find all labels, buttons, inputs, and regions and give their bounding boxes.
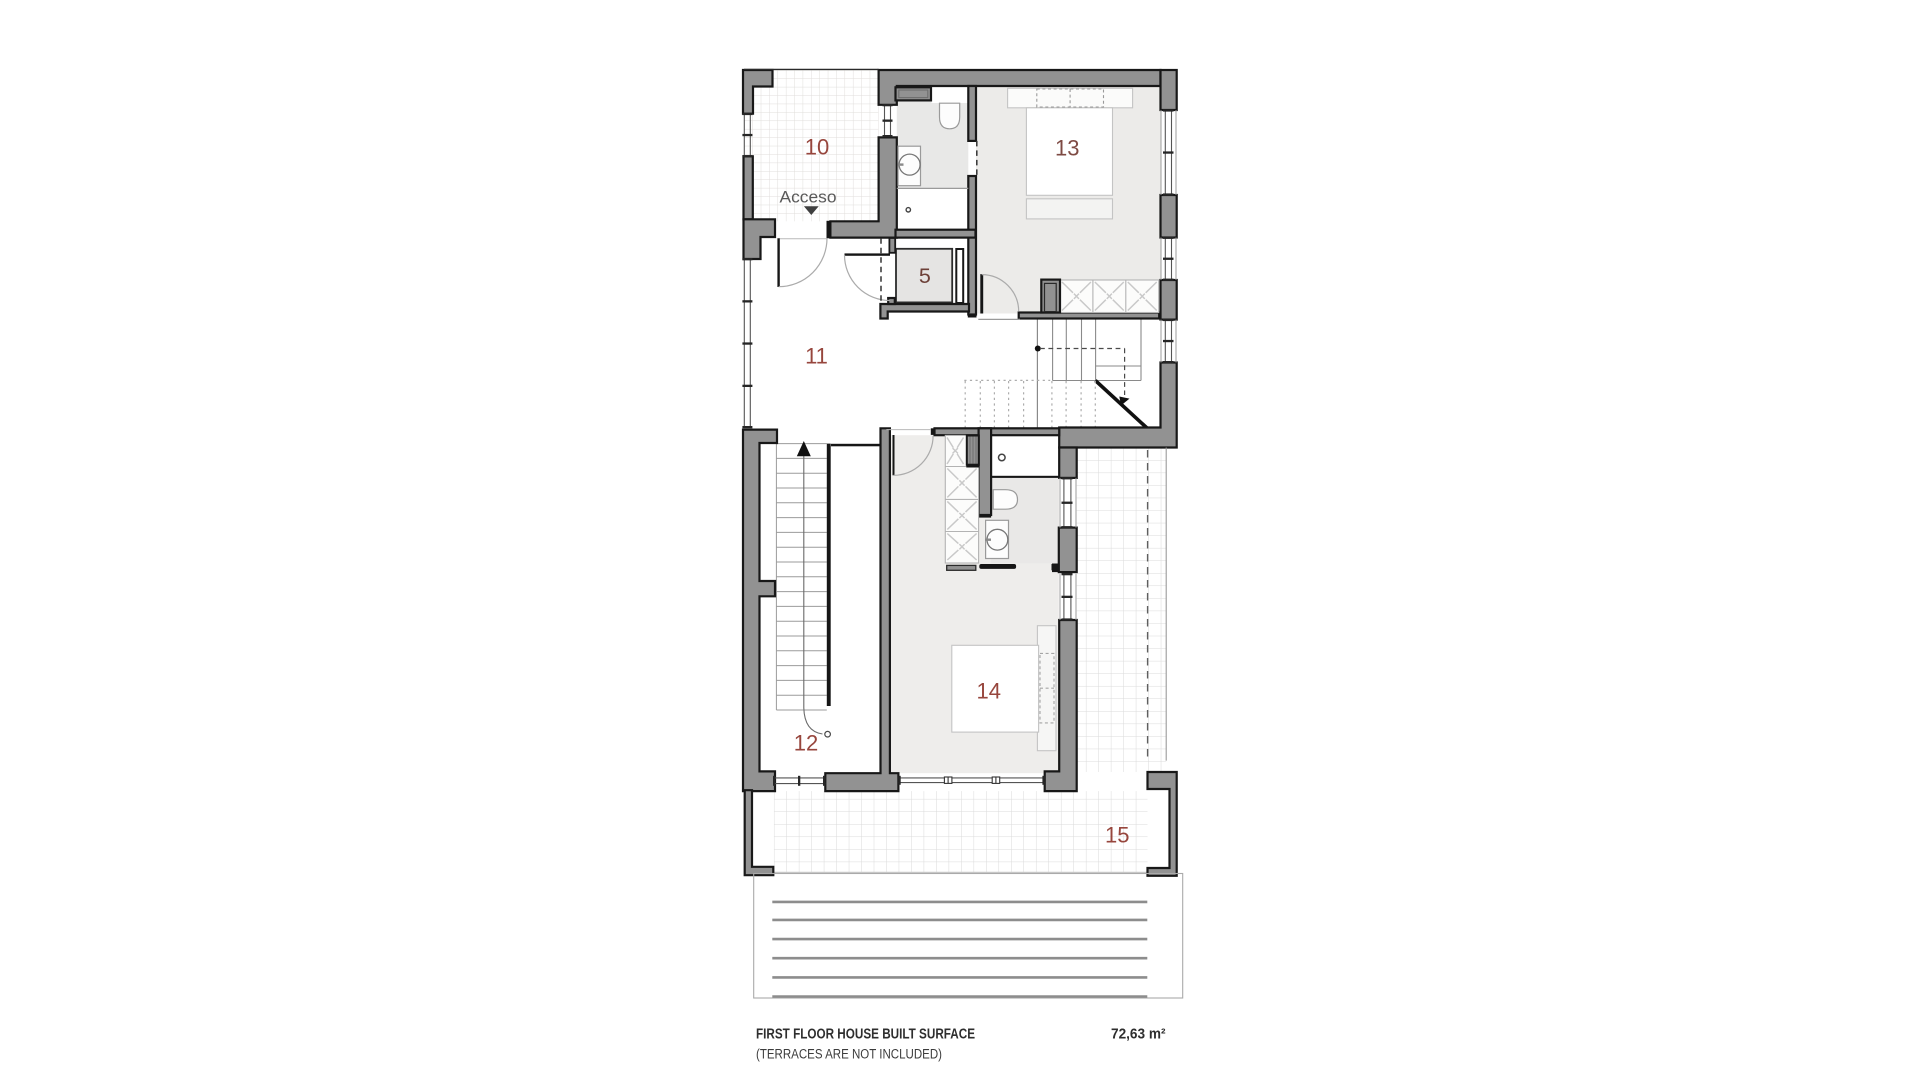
svg-text:FIRST FLOOR HOUSE BUILT SURFAC: FIRST FLOOR HOUSE BUILT SURFACE — [756, 1027, 975, 1043]
svg-text:72,63 m²: 72,63 m² — [1111, 1027, 1166, 1043]
svg-text:14: 14 — [977, 679, 1001, 704]
svg-text:15: 15 — [1105, 823, 1129, 848]
svg-text:10: 10 — [805, 135, 829, 160]
svg-text:Acceso: Acceso — [780, 188, 837, 207]
svg-text:5: 5 — [919, 264, 931, 288]
svg-text:12: 12 — [794, 731, 818, 756]
svg-text:(TERRACES ARE NOT INCLUDED): (TERRACES ARE NOT INCLUDED) — [756, 1046, 942, 1062]
svg-text:11: 11 — [805, 343, 828, 368]
svg-text:13: 13 — [1055, 136, 1079, 161]
